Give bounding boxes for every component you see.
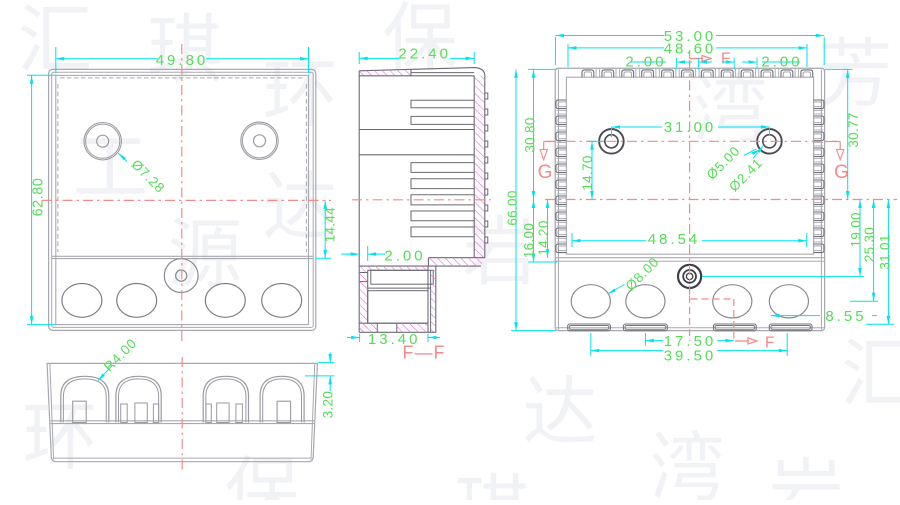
svg-text:G: G [834, 162, 849, 183]
svg-text:22.40: 22.40 [398, 45, 451, 62]
svg-text:琪: 琪 [454, 468, 529, 500]
svg-text:31.00: 31.00 [664, 119, 717, 136]
svg-text:2.00: 2.00 [761, 54, 802, 71]
svg-text:芳: 芳 [817, 32, 892, 116]
svg-text:25.30: 25.30 [862, 227, 877, 262]
svg-text:达: 达 [522, 370, 597, 454]
svg-text:49.80: 49.80 [156, 52, 209, 69]
svg-text:62.80: 62.80 [30, 178, 46, 217]
svg-text:30.80: 30.80 [522, 117, 537, 152]
svg-text:48.60: 48.60 [664, 40, 717, 57]
svg-text:2.00: 2.00 [625, 54, 666, 71]
svg-text:湾: 湾 [649, 426, 724, 500]
svg-text:源: 源 [167, 212, 242, 296]
svg-text:G: G [538, 162, 553, 183]
svg-text:汇: 汇 [840, 332, 900, 416]
svg-text:14.44: 14.44 [323, 207, 338, 242]
svg-text:48.54: 48.54 [648, 231, 701, 248]
svg-text:湾: 湾 [692, 68, 767, 152]
svg-text:14.20: 14.20 [536, 220, 551, 255]
svg-text:30.77: 30.77 [846, 112, 861, 147]
svg-text:环: 环 [262, 52, 337, 136]
svg-text:39.50: 39.50 [664, 347, 717, 364]
svg-text:66.00: 66.00 [505, 190, 520, 225]
svg-text:3.20: 3.20 [321, 391, 336, 418]
svg-text:F: F [765, 334, 775, 351]
svg-text:14.70: 14.70 [580, 155, 595, 190]
svg-text:2.00: 2.00 [384, 248, 425, 265]
svg-text:8.55: 8.55 [825, 308, 866, 325]
svg-text:31.01: 31.01 [877, 234, 892, 269]
svg-text:F—F: F—F [403, 342, 446, 362]
svg-text:岩: 岩 [768, 452, 843, 500]
svg-text:琪: 琪 [147, 8, 222, 92]
svg-text:16.00: 16.00 [522, 223, 537, 258]
svg-text:保: 保 [224, 450, 299, 500]
svg-text:F: F [721, 51, 731, 68]
